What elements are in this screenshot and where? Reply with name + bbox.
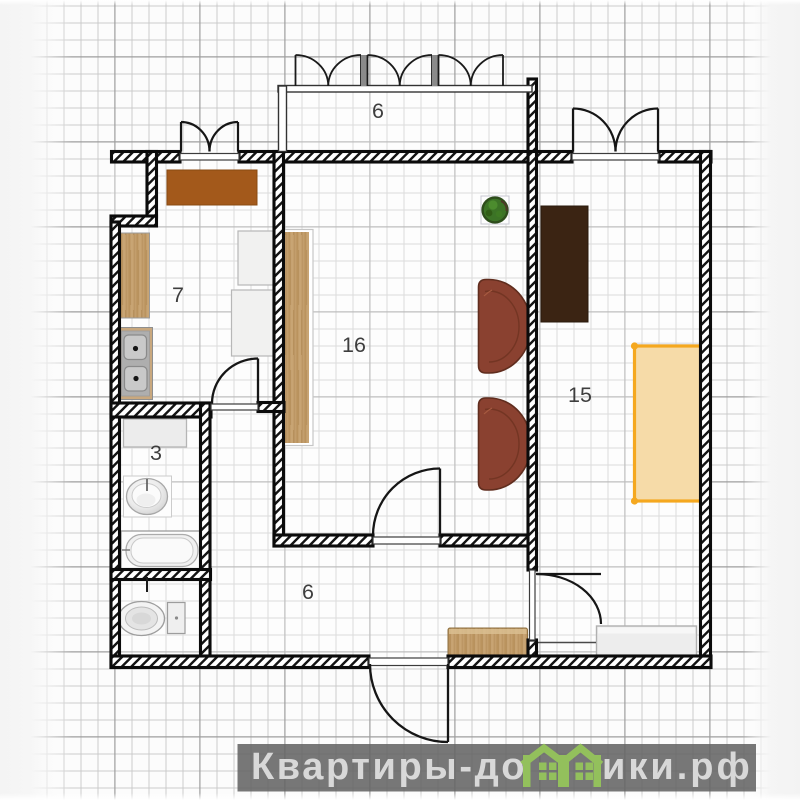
svg-text:ики.рф: ики.рф — [602, 746, 753, 788]
svg-text:Квартиры-до: Квартиры-до — [251, 746, 527, 788]
svg-text:6: 6 — [372, 99, 384, 123]
svg-text:15: 15 — [568, 383, 592, 407]
svg-text:3: 3 — [150, 441, 162, 465]
svg-text:6: 6 — [302, 580, 314, 604]
svg-text:7: 7 — [172, 283, 184, 307]
svg-text:16: 16 — [342, 333, 366, 357]
